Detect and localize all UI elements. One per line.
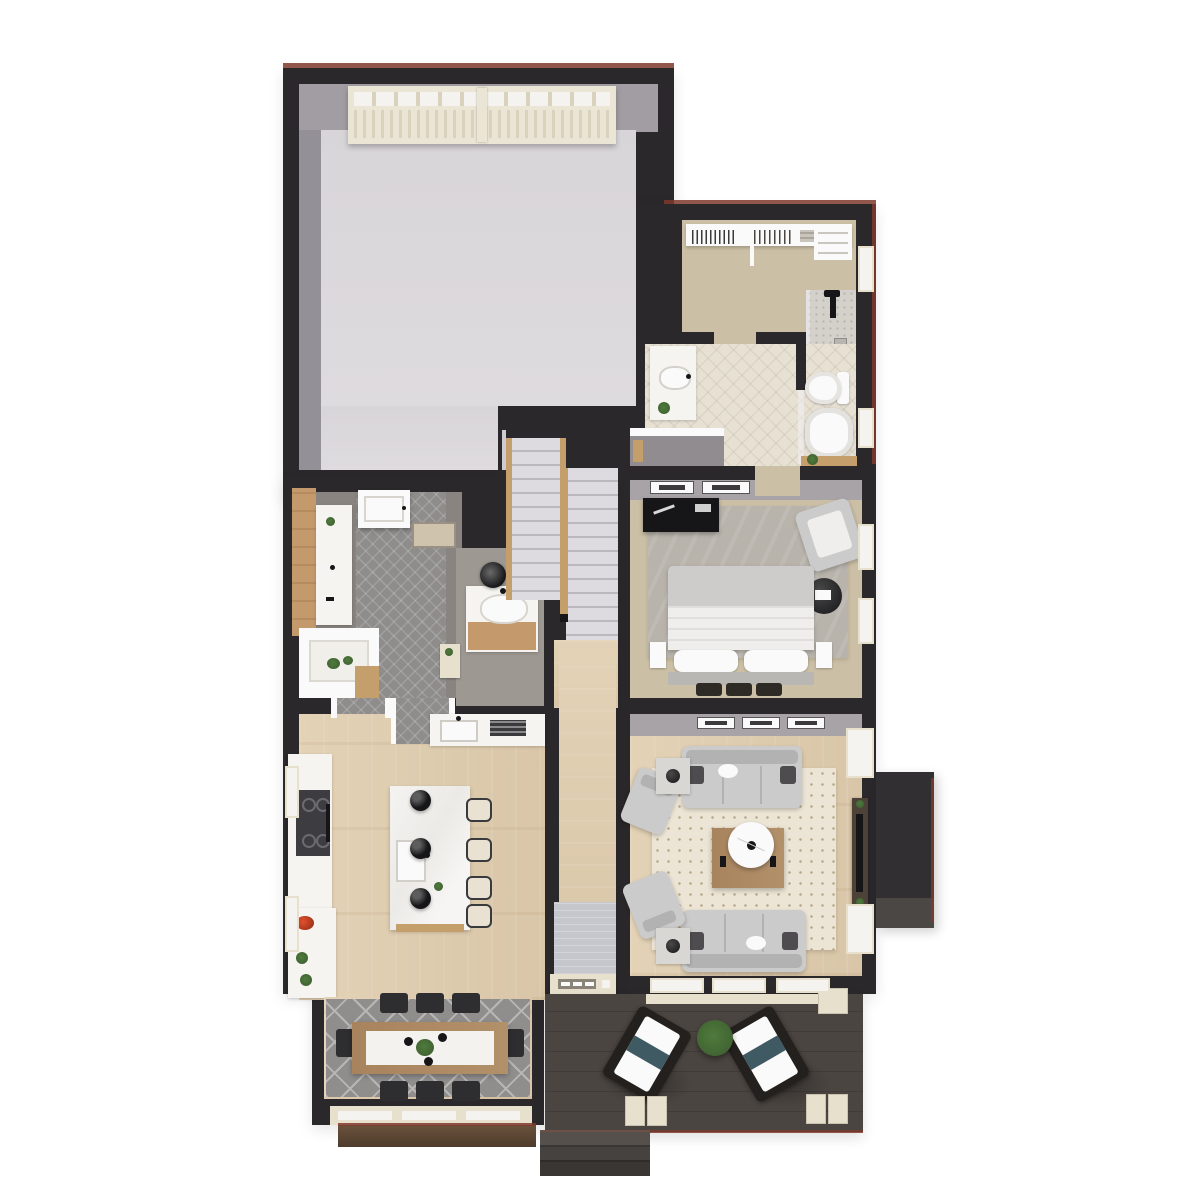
kitchen <box>283 698 559 1000</box>
burner <box>302 834 316 848</box>
sofa-bottom <box>682 910 806 972</box>
toilet-bowl <box>805 372 841 404</box>
living-wall-art-1 <box>697 717 735 729</box>
door-panel <box>364 496 404 522</box>
dresser-decor <box>653 504 675 514</box>
kitchen-island <box>390 786 470 930</box>
table-book <box>815 590 831 600</box>
vanity-faucet <box>686 374 691 379</box>
bed <box>668 566 814 698</box>
bedroom-window-1 <box>858 524 874 570</box>
bay-window-pane <box>336 1109 394 1122</box>
pendant-light-2 <box>410 838 431 859</box>
stair-center-rail <box>560 468 568 620</box>
floor-plan-render <box>0 0 1200 1200</box>
porch-column-base <box>806 1094 826 1124</box>
sink-counter <box>430 714 545 746</box>
dresser-tray <box>695 504 711 512</box>
tub-plant <box>807 454 818 465</box>
bar-stool-4 <box>466 904 492 928</box>
bath-vanity <box>650 346 696 420</box>
fireplace-face <box>876 898 934 928</box>
garage-wall-face-left <box>299 130 321 470</box>
mudroom-bench <box>412 522 456 548</box>
porch <box>545 994 863 1176</box>
porch-column-base <box>625 1096 645 1126</box>
round-tray-table <box>728 822 774 868</box>
garage-door <box>348 86 616 144</box>
sofa-back <box>686 750 798 764</box>
porch-window-2 <box>712 978 766 993</box>
tv-console <box>852 798 868 908</box>
fireplace-bumpout <box>876 772 934 928</box>
closet-window <box>858 246 874 292</box>
bedroom-window-2 <box>858 598 874 644</box>
kitchen-plant-1 <box>296 952 308 964</box>
pendant-light-3 <box>410 888 431 909</box>
island-base <box>396 924 464 932</box>
soap-cabinet <box>440 644 460 678</box>
bedroom-dresser <box>643 498 719 532</box>
bay-window-pane <box>464 1109 522 1122</box>
porch-window-3 <box>776 978 830 993</box>
living-window-bottom <box>846 904 874 954</box>
entry-rug <box>554 902 616 974</box>
cushion-seam <box>760 766 762 804</box>
hanging-clothes-1 <box>692 230 736 244</box>
dining-chair <box>452 1081 480 1101</box>
toilet <box>805 368 853 408</box>
door-glazing <box>558 979 596 989</box>
closet-crate <box>633 440 643 462</box>
tub-glass <box>798 390 804 464</box>
table-candle <box>770 856 776 867</box>
planter-roofline <box>338 1123 536 1126</box>
bath-doorway <box>755 466 800 496</box>
kitchen-sink <box>440 720 478 742</box>
living-window-top <box>846 728 874 778</box>
kitchen-window-1 <box>285 766 299 818</box>
newel-post <box>560 614 568 622</box>
chandelier-greenery <box>416 1039 434 1056</box>
round-pillow <box>746 936 766 950</box>
table-lamp-icon <box>666 769 680 783</box>
garage-floor <box>321 130 636 406</box>
doorway-tile-left <box>336 698 386 714</box>
cooktop <box>296 790 330 856</box>
nightstand-left <box>650 642 666 668</box>
dining-chair <box>380 1081 408 1101</box>
tv-screen <box>856 814 863 892</box>
porch-steps <box>540 1130 650 1174</box>
living-wall-art-3 <box>787 717 825 729</box>
bar-stool-2 <box>466 838 492 862</box>
throw-pillow <box>782 932 798 950</box>
kitchen-window-2 <box>285 896 299 952</box>
window-sill-band <box>646 994 842 1004</box>
bedroom-wall-art-2 <box>702 481 750 494</box>
counter-faucet <box>330 565 335 570</box>
window-planter-box <box>338 1125 536 1147</box>
throw-pillow <box>780 766 796 784</box>
table-candle <box>720 856 726 867</box>
porch-column-base <box>828 1094 848 1124</box>
table-lamp-icon <box>666 939 680 953</box>
dining-chair <box>416 1081 444 1101</box>
bed-pillow-left <box>674 650 738 672</box>
closet-divider <box>750 224 754 266</box>
art-content <box>712 485 740 489</box>
front-door <box>550 974 616 994</box>
art-content <box>750 721 772 725</box>
bar-stool-1 <box>466 798 492 822</box>
oven-handle <box>326 804 330 842</box>
bed-duvet <box>668 566 814 650</box>
step-3 <box>540 1160 650 1176</box>
art-content <box>659 485 684 489</box>
living-wall-art-2 <box>742 717 780 729</box>
dining-chair <box>380 993 408 1013</box>
door-sidelight <box>600 978 612 990</box>
dining-chair <box>416 993 444 1013</box>
bay-window-pane <box>400 1109 458 1122</box>
kitchen-faucet <box>456 716 461 721</box>
chandelier-globe <box>404 1037 413 1046</box>
throw-pillow <box>688 766 704 784</box>
chandelier-globe <box>424 1057 433 1066</box>
cabinet-greens <box>445 648 453 656</box>
pantry-wood-floor <box>355 666 379 698</box>
nightstand-right <box>816 642 832 668</box>
stair-stringer <box>506 438 512 600</box>
glass-pane <box>561 982 570 986</box>
door-trim <box>391 698 396 744</box>
burner <box>302 798 316 812</box>
vanity-plant <box>658 402 670 414</box>
bath-window <box>858 408 874 448</box>
fireplace-roofline <box>931 778 934 922</box>
garage-entry-door <box>358 490 410 528</box>
dining-room <box>312 985 544 1150</box>
basket-3 <box>756 683 782 696</box>
sofa-top <box>682 746 802 808</box>
round-pillow <box>718 764 738 778</box>
pantry-plant-2 <box>343 656 353 665</box>
island-greens <box>434 882 443 891</box>
shelf-line <box>818 232 848 234</box>
shelf-line <box>818 252 848 254</box>
art-content <box>795 721 817 725</box>
bedroom-wall-art-1 <box>650 481 694 494</box>
garage-door-post <box>477 88 487 142</box>
pantry-plant-1 <box>327 658 340 669</box>
glass-pane <box>573 982 582 986</box>
armchair-blanket <box>806 509 853 558</box>
side-table-bottom <box>656 928 690 964</box>
stair-flight-left <box>506 438 566 600</box>
shower-head-icon <box>824 290 840 297</box>
console-plant <box>856 800 864 808</box>
dining-end-chair <box>506 1029 524 1057</box>
throw-pillow <box>688 932 704 950</box>
kitchen-plant-2 <box>300 974 312 986</box>
hanging-clothes-2 <box>754 230 794 244</box>
bedroom <box>616 466 876 714</box>
counter-item <box>326 597 334 601</box>
shelf-line <box>818 242 848 244</box>
pendant-light-1 <box>410 790 431 811</box>
basket-1 <box>696 683 722 696</box>
cushion-seam <box>724 914 726 952</box>
stair-flight-right <box>566 468 618 668</box>
bed-blanket <box>668 606 814 650</box>
bedroom-closet <box>630 428 724 466</box>
bathtub <box>805 408 853 458</box>
living-room <box>616 698 876 990</box>
chandelier-globe <box>438 1033 447 1042</box>
wood-accent-wall <box>292 488 316 636</box>
closet-shelf <box>630 428 724 436</box>
sofa-back <box>686 954 802 968</box>
counter-plant <box>326 517 335 526</box>
closet-shelf-unit <box>814 224 852 260</box>
glass-pane <box>585 982 594 986</box>
pantry <box>299 628 379 698</box>
garage-floor-ell <box>321 406 498 470</box>
basket-2 <box>726 683 752 696</box>
dining-chair <box>452 993 480 1013</box>
counter-appliance <box>490 720 526 736</box>
porch-window-1 <box>650 978 704 993</box>
porch-column-base <box>647 1096 667 1126</box>
door-handle-icon <box>402 506 406 510</box>
porch-potted-plant <box>697 1020 733 1056</box>
side-table-top <box>656 758 690 794</box>
bed-pillow-right <box>744 650 808 672</box>
laundry-counter <box>316 505 352 625</box>
art-content <box>705 721 727 725</box>
door-trim <box>331 698 337 718</box>
bar-stool-3 <box>466 876 492 900</box>
